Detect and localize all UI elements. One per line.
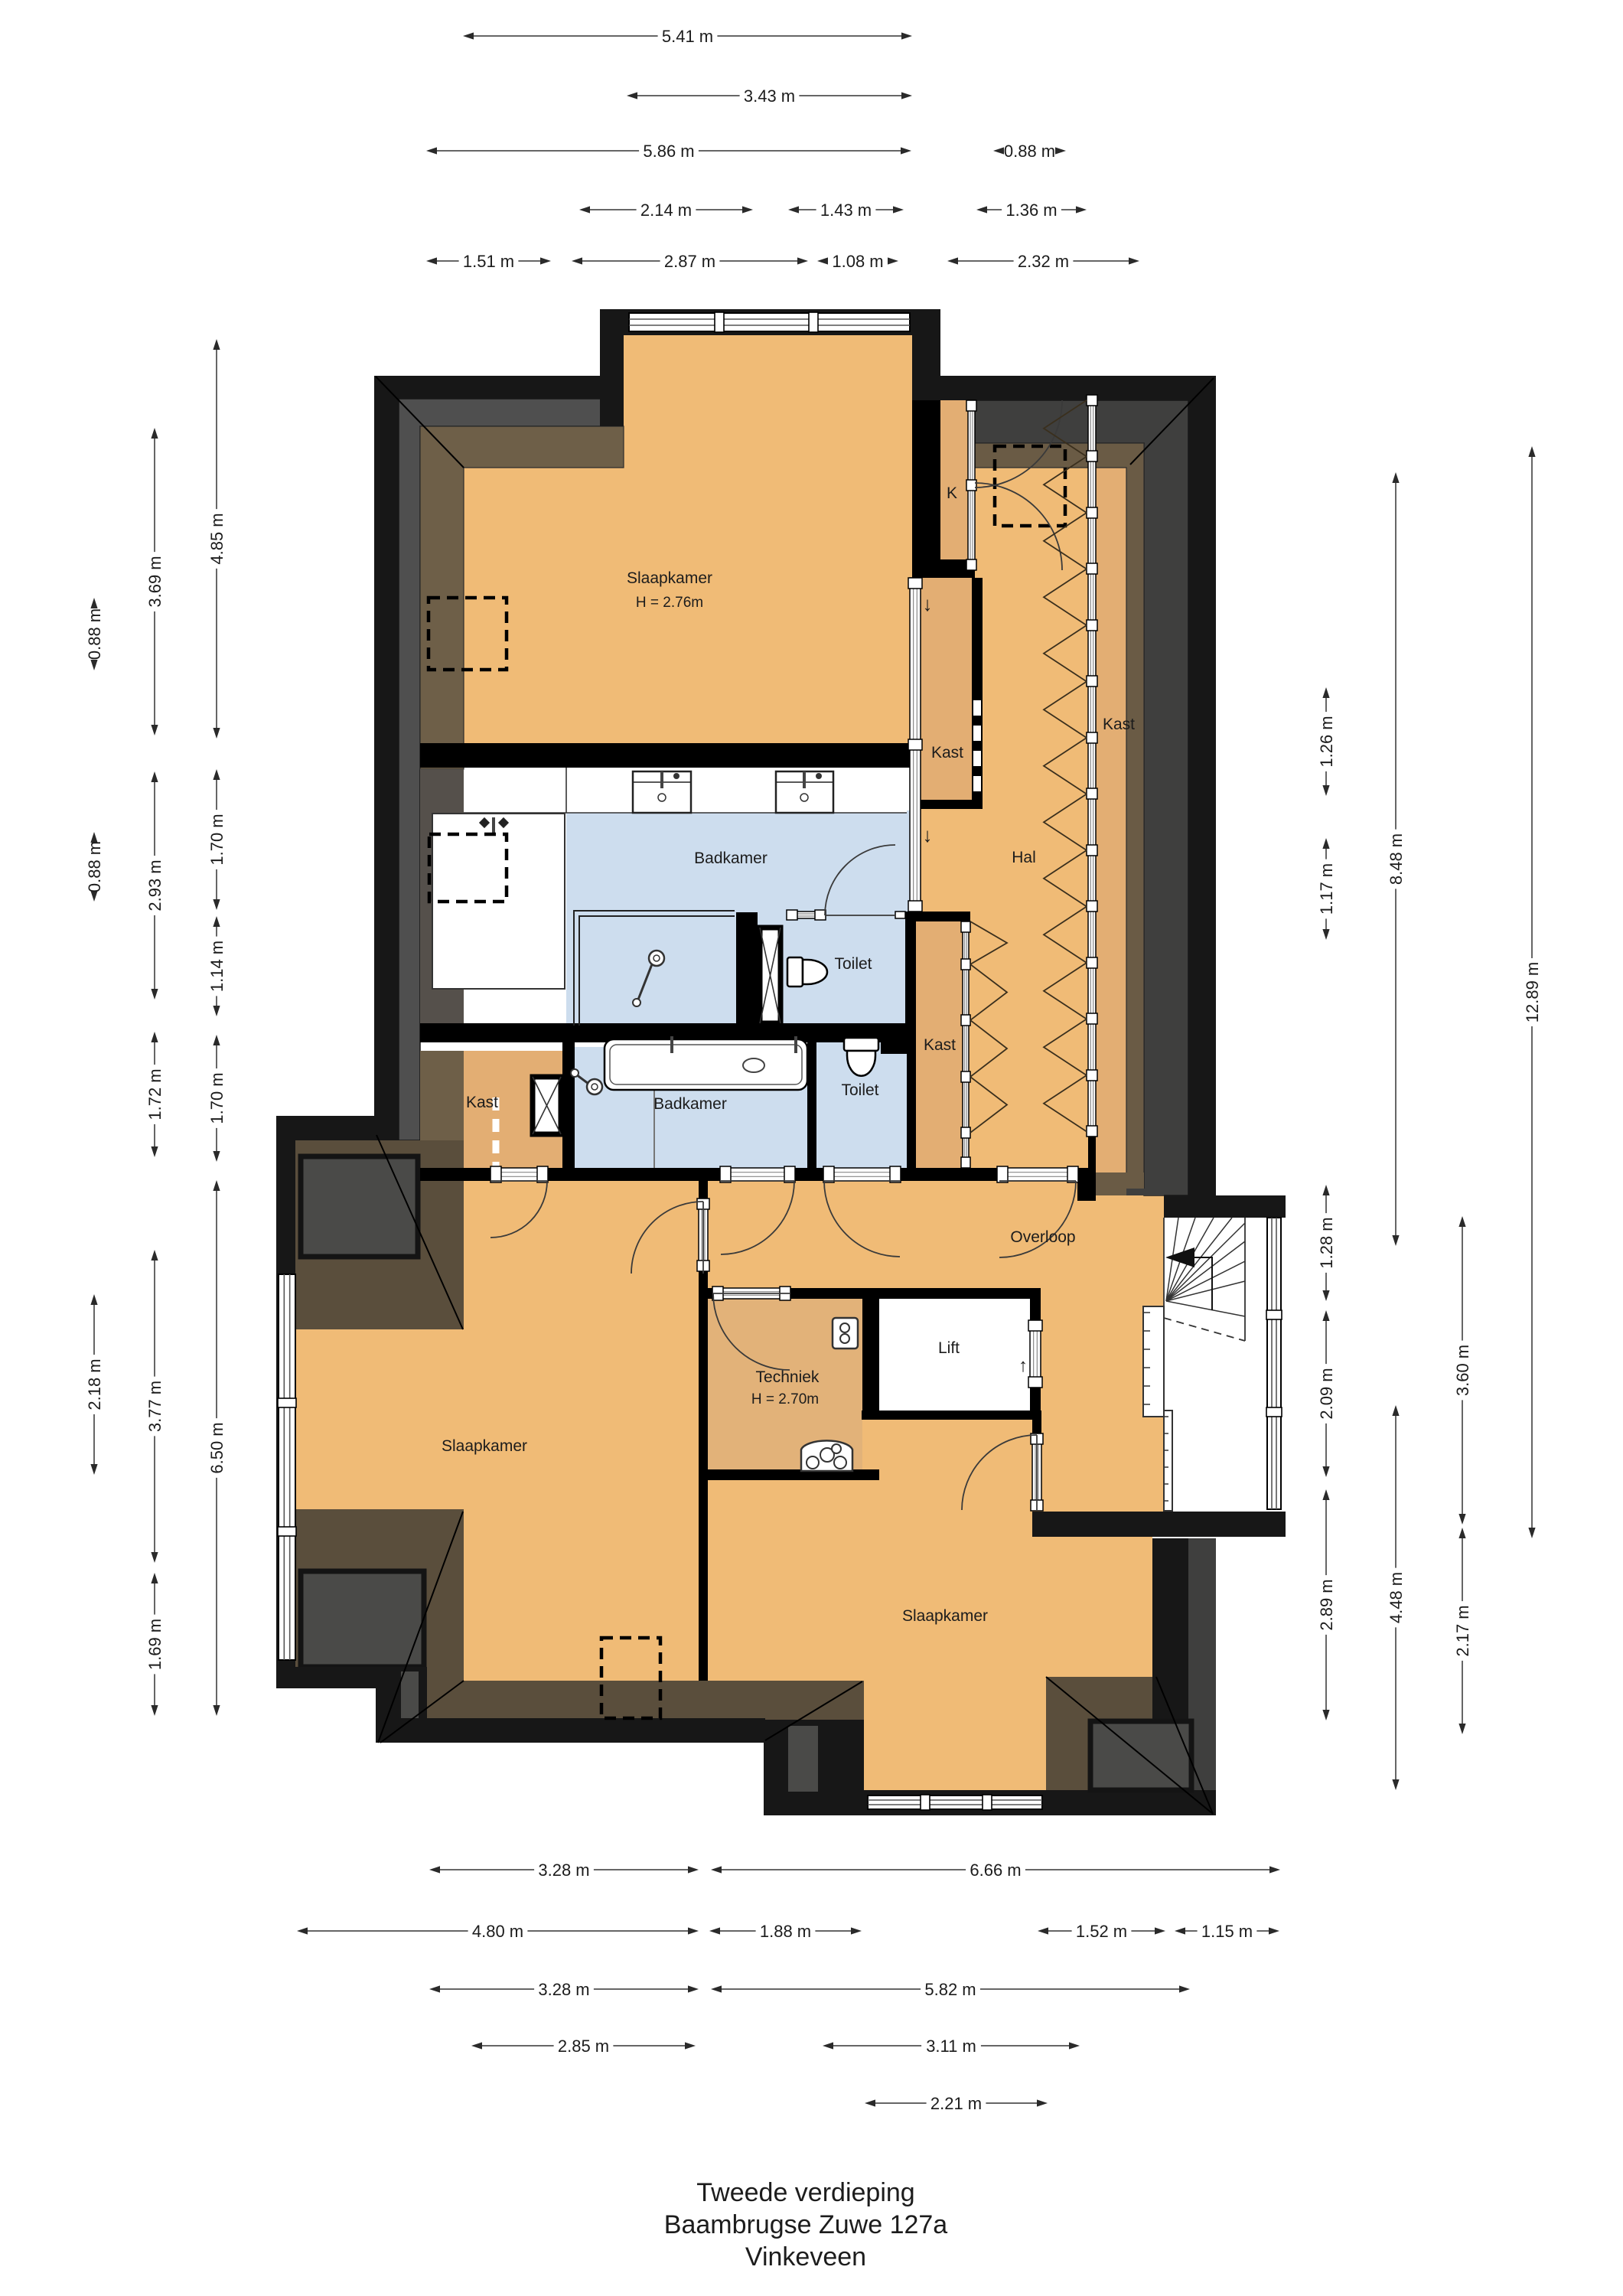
svg-text:Baambrugse Zuwe 127a: Baambrugse Zuwe 127a <box>664 2210 948 2239</box>
svg-text:1.43 m: 1.43 m <box>820 201 872 220</box>
svg-text:2.17 m: 2.17 m <box>1453 1605 1472 1656</box>
svg-text:2.89 m: 2.89 m <box>1317 1579 1336 1630</box>
svg-text:H = 2.76m: H = 2.76m <box>636 595 703 611</box>
svg-text:Lift: Lift <box>938 1339 960 1357</box>
svg-text:Badkamer: Badkamer <box>694 850 768 867</box>
svg-text:1.52 m: 1.52 m <box>1076 1922 1127 1941</box>
svg-text:2.18 m: 2.18 m <box>85 1358 104 1410</box>
svg-text:2.85 m: 2.85 m <box>558 2037 609 2056</box>
svg-text:4.48 m: 4.48 m <box>1387 1572 1406 1623</box>
svg-text:1.88 m: 1.88 m <box>760 1922 811 1941</box>
svg-text:5.41 m: 5.41 m <box>662 27 713 46</box>
svg-text:Hal: Hal <box>1012 849 1036 866</box>
svg-text:2.93 m: 2.93 m <box>145 859 165 911</box>
svg-text:4.80 m: 4.80 m <box>472 1922 523 1941</box>
svg-text:3.77 m: 3.77 m <box>145 1381 165 1432</box>
svg-text:K: K <box>947 484 957 502</box>
svg-text:3.11 m: 3.11 m <box>926 2037 976 2056</box>
svg-text:3.69 m: 3.69 m <box>145 556 165 607</box>
svg-text:Slaapkamer: Slaapkamer <box>442 1437 527 1455</box>
svg-text:1.15 m: 1.15 m <box>1201 1922 1253 1941</box>
svg-text:1.72 m: 1.72 m <box>145 1068 165 1120</box>
svg-text:12.89 m: 12.89 m <box>1523 962 1542 1023</box>
svg-text:6.50 m: 6.50 m <box>207 1422 227 1473</box>
svg-text:3.28 m: 3.28 m <box>538 1861 589 1880</box>
svg-text:0.88 m: 0.88 m <box>85 841 104 892</box>
svg-text:1.69 m: 1.69 m <box>145 1619 165 1670</box>
svg-text:1.70 m: 1.70 m <box>207 1072 227 1124</box>
svg-text:2.21 m: 2.21 m <box>930 2094 982 2113</box>
svg-text:1.70 m: 1.70 m <box>207 814 227 865</box>
svg-text:Vinkeveen: Vinkeveen <box>745 2242 866 2272</box>
svg-text:1.26 m: 1.26 m <box>1317 716 1336 767</box>
svg-text:3.28 m: 3.28 m <box>538 1980 589 1999</box>
svg-text:↓: ↓ <box>923 592 933 615</box>
svg-text:Badkamer: Badkamer <box>653 1095 727 1113</box>
svg-text:Tweede verdieping: Tweede verdieping <box>696 2178 914 2207</box>
svg-text:↑: ↑ <box>1018 1355 1028 1376</box>
svg-text:4.85 m: 4.85 m <box>207 513 227 564</box>
svg-text:Overloop: Overloop <box>1010 1228 1075 1246</box>
svg-text:Toilet: Toilet <box>834 955 872 973</box>
svg-text:2.09 m: 2.09 m <box>1317 1368 1336 1419</box>
svg-text:1.08 m: 1.08 m <box>832 252 883 271</box>
svg-text:Techniek: Techniek <box>756 1368 820 1386</box>
svg-text:6.66 m: 6.66 m <box>970 1861 1021 1880</box>
svg-text:Kast: Kast <box>924 1036 956 1054</box>
svg-text:5.82 m: 5.82 m <box>924 1980 976 1999</box>
svg-text:2.14 m: 2.14 m <box>640 201 692 220</box>
svg-text:8.48 m: 8.48 m <box>1387 833 1406 885</box>
svg-text:0.88 m: 0.88 m <box>1004 142 1055 161</box>
svg-text:Kast: Kast <box>466 1094 498 1111</box>
svg-text:Kast: Kast <box>1103 716 1135 733</box>
svg-text:2.87 m: 2.87 m <box>664 252 715 271</box>
svg-text:1.36 m: 1.36 m <box>1005 201 1057 220</box>
svg-text:Slaapkamer: Slaapkamer <box>627 569 712 587</box>
svg-text:Toilet: Toilet <box>841 1081 878 1099</box>
svg-text:2.32 m: 2.32 m <box>1018 252 1069 271</box>
svg-text:1.14 m: 1.14 m <box>207 941 227 992</box>
svg-text:3.43 m: 3.43 m <box>744 86 795 106</box>
svg-text:1.17 m: 1.17 m <box>1317 863 1336 915</box>
svg-text:Kast: Kast <box>931 744 963 762</box>
svg-text:H = 2.70m: H = 2.70m <box>751 1391 819 1407</box>
svg-text:5.86 m: 5.86 m <box>643 142 694 161</box>
svg-text:1.51 m: 1.51 m <box>463 252 514 271</box>
svg-text:Slaapkamer: Slaapkamer <box>902 1607 988 1625</box>
svg-text:0.88 m: 0.88 m <box>85 608 104 660</box>
svg-text:1.28 m: 1.28 m <box>1317 1217 1336 1268</box>
svg-text:3.60 m: 3.60 m <box>1453 1345 1472 1396</box>
svg-text:↓: ↓ <box>923 823 933 846</box>
